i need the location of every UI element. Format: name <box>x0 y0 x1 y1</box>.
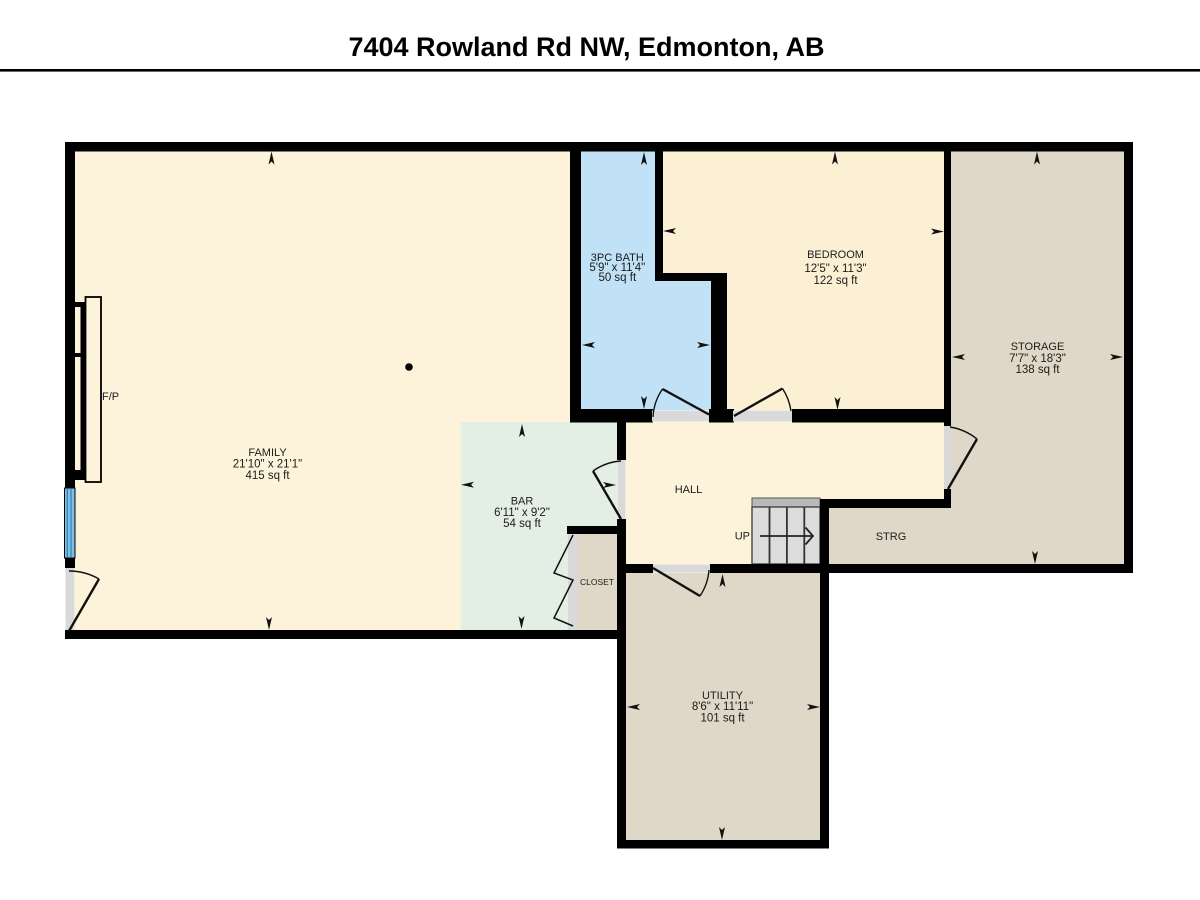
svg-text:F/P: F/P <box>102 391 119 403</box>
svg-text:STORAGE: STORAGE <box>1011 341 1065 353</box>
svg-text:FAMILY: FAMILY <box>248 447 287 459</box>
svg-text:7404 Rowland Rd NW, Edmonton,: 7404 Rowland Rd NW, Edmonton, AB <box>348 32 824 62</box>
svg-text:12'5" x 11'3": 12'5" x 11'3" <box>804 263 866 275</box>
svg-text:415 sq ft: 415 sq ft <box>245 470 290 482</box>
svg-text:STRG: STRG <box>876 531 907 543</box>
svg-text:101 sq ft: 101 sq ft <box>700 713 745 725</box>
svg-text:54 sq ft: 54 sq ft <box>503 518 542 530</box>
svg-text:BEDROOM: BEDROOM <box>807 249 864 261</box>
svg-text:21'10" x 21'1": 21'10" x 21'1" <box>233 459 302 471</box>
svg-text:BAR: BAR <box>511 496 534 508</box>
svg-text:122 sq ft: 122 sq ft <box>813 275 858 287</box>
svg-text:HALL: HALL <box>675 484 703 496</box>
svg-text:UP: UP <box>735 531 750 543</box>
svg-text:CLOSET: CLOSET <box>580 577 614 587</box>
svg-text:50 sq ft: 50 sq ft <box>598 272 637 284</box>
svg-text:8'6" x 11'11": 8'6" x 11'11" <box>692 701 753 713</box>
svg-text:138 sq ft: 138 sq ft <box>1015 364 1060 376</box>
